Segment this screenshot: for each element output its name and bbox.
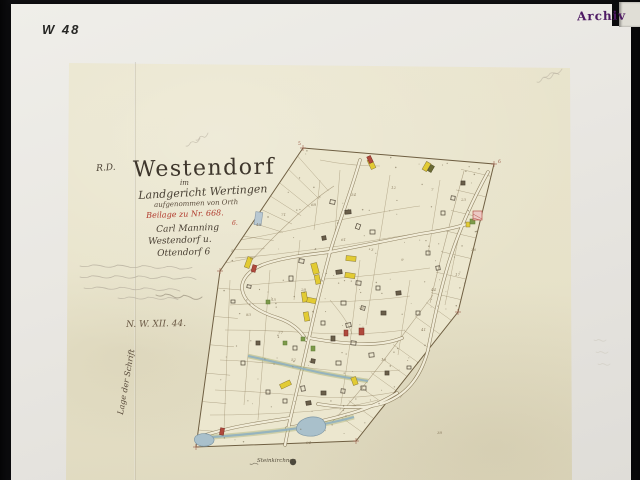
map-title: Westendorf: [133, 155, 276, 183]
red-margin-mark: 6.: [232, 221, 238, 227]
archive-stamp: Archiv: [577, 9, 626, 24]
paper-fold-crease: [134, 62, 136, 480]
map-sheet-paper: [66, 62, 572, 480]
title-initials: R.D.: [96, 164, 116, 174]
archive-number-note: N. W. XII. 44.: [126, 320, 186, 330]
surveyor-signature: Steinkirchner: [257, 459, 295, 465]
shelf-mark-label: W 48: [42, 22, 80, 37]
title-line-place2: Ottendorf 6: [157, 248, 210, 259]
archive-photo-backdrop: { "photo": { "shelf_mark": "W 48", "stam…: [0, 0, 640, 480]
